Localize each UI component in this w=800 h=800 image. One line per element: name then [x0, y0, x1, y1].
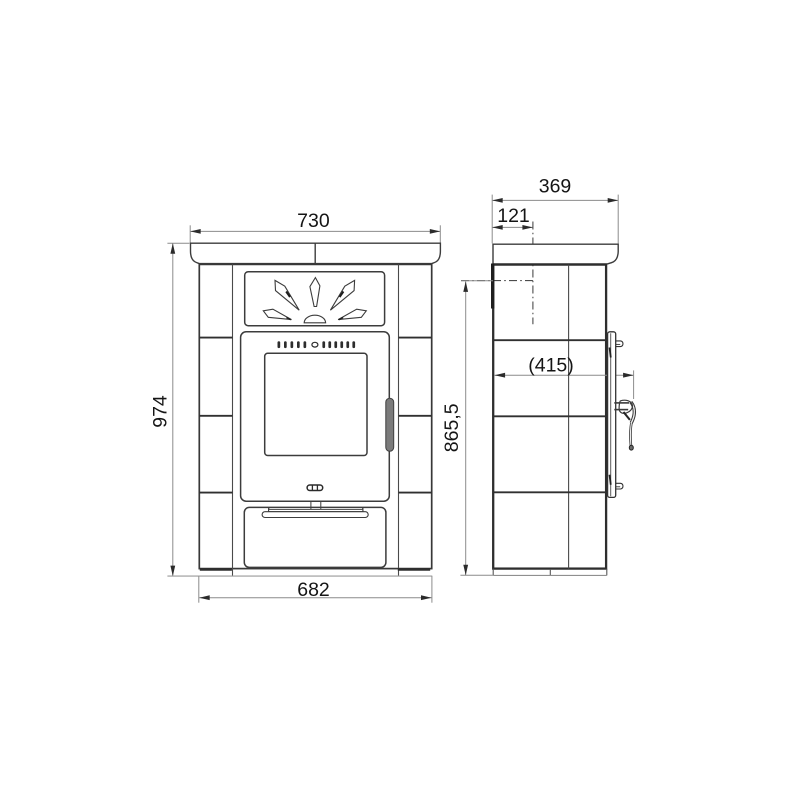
- svg-text:682: 682: [297, 579, 330, 601]
- svg-text:865,5: 865,5: [441, 403, 463, 452]
- svg-text:730: 730: [297, 210, 330, 232]
- svg-text:974: 974: [149, 395, 171, 428]
- svg-text:369: 369: [539, 175, 572, 197]
- svg-text:(415): (415): [528, 354, 574, 376]
- svg-text:121: 121: [497, 205, 530, 227]
